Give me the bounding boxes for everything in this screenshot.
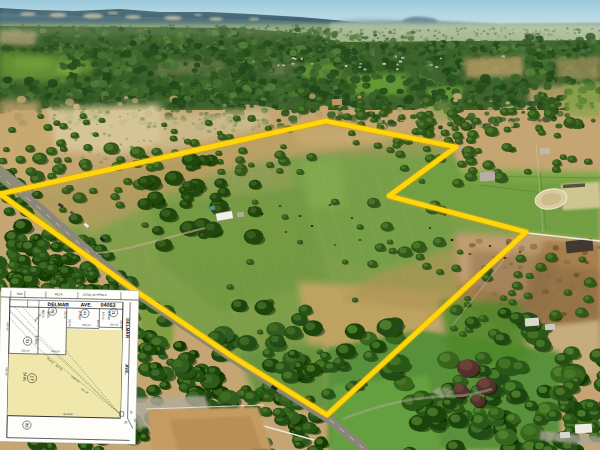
svg-text:461'A: 461'A xyxy=(55,292,63,296)
svg-text:660.00': 660.00' xyxy=(4,368,8,377)
svg-text:31: 31 xyxy=(25,339,30,344)
svg-text:DELMAR: DELMAR xyxy=(125,318,130,338)
svg-text:5ac.: 5ac. xyxy=(46,311,50,318)
svg-text:660.00': 660.00' xyxy=(6,323,10,332)
svg-text:17: 17 xyxy=(29,376,34,382)
svg-text:AVE.: AVE. xyxy=(124,364,129,375)
svg-text:330.00': 330.00' xyxy=(96,320,100,329)
svg-text:330.00': 330.00' xyxy=(68,319,72,328)
svg-text:330.00': 330.00' xyxy=(119,320,123,329)
svg-text:DELMAR: DELMAR xyxy=(48,301,70,307)
svg-text:10CA) 10-HP31.4: 10CA) 10-HP31.4 xyxy=(83,293,107,298)
svg-text:29: 29 xyxy=(129,410,133,414)
svg-text:3.6ac: 3.6ac xyxy=(34,335,38,344)
svg-text:04053: 04053 xyxy=(101,302,116,308)
svg-text:28: 28 xyxy=(133,418,137,422)
svg-text:44: 44 xyxy=(82,311,87,316)
svg-text:330.00': 330.00' xyxy=(63,311,67,320)
svg-text:AVE.: AVE. xyxy=(81,301,93,307)
svg-text:2.5ac: 2.5ac xyxy=(107,311,111,320)
svg-text:2043.56': 2043.56' xyxy=(63,412,73,416)
svg-text:2.5ac: 2.5ac xyxy=(78,311,82,320)
svg-text:300.00': 300.00' xyxy=(101,312,105,321)
svg-text:90: 90 xyxy=(24,423,29,428)
svg-text:300.00': 300.00' xyxy=(52,349,61,353)
svg-text:33: 33 xyxy=(124,420,128,424)
svg-text:330.00': 330.00' xyxy=(22,348,31,352)
svg-text:24ac.: 24ac. xyxy=(22,372,27,382)
svg-text:SAC: SAC xyxy=(17,292,24,296)
svg-text:300.00': 300.00' xyxy=(110,322,119,326)
svg-text:300.00': 300.00' xyxy=(82,323,91,327)
